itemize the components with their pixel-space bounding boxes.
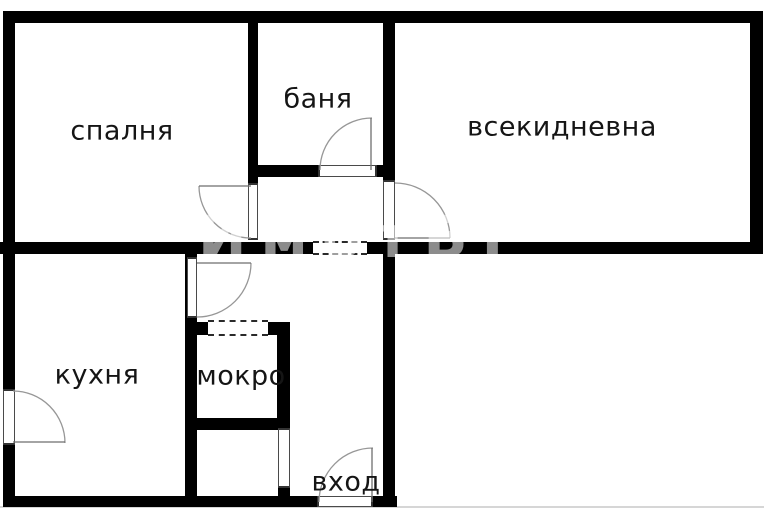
bedroom-label: спалня [70,116,173,147]
kitchen-door-arc [197,263,251,317]
bathroom-door-arc [320,118,372,170]
site-watermark: ИмотБГ [198,206,533,268]
utility-label: мокро [196,361,285,392]
entrance-label: вход [311,467,380,498]
balcony-door-arc [13,391,65,443]
floor-plan: ИмотБГ спалня баня всекидневна кухня мок… [0,0,764,510]
livingroom-label: всекидневна [467,112,657,143]
bathroom-label: баня [283,84,352,115]
kitchen-label: кухня [55,360,140,391]
